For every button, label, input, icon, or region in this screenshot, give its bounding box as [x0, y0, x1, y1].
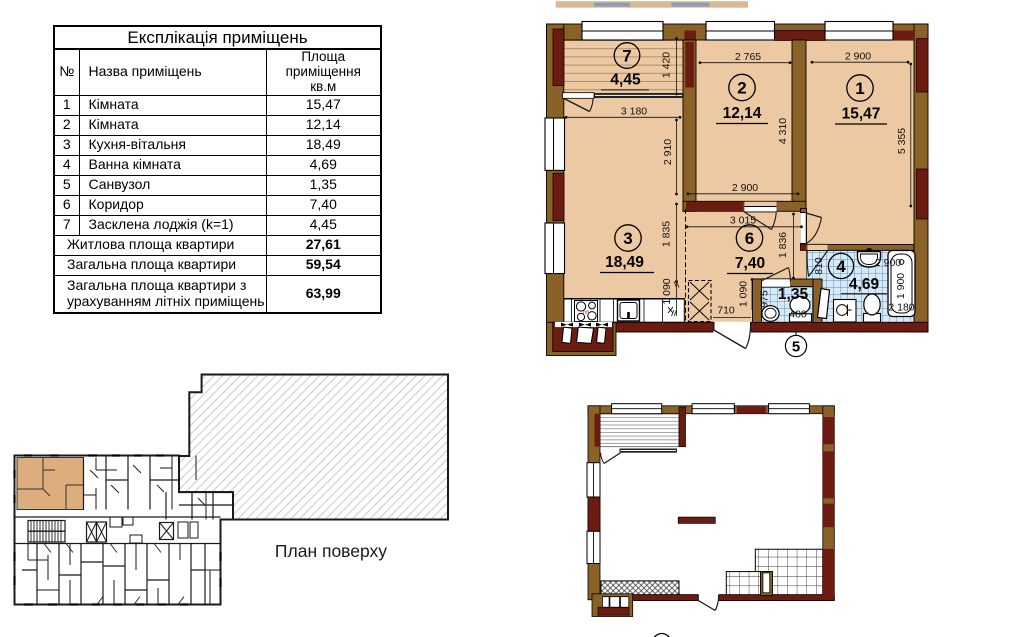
svg-text:18,49: 18,49 [605, 254, 644, 271]
svg-text:3: 3 [623, 229, 632, 248]
svg-text:4,69: 4,69 [849, 276, 880, 293]
svg-text:1: 1 [855, 79, 864, 98]
svg-text:6: 6 [745, 229, 754, 248]
svg-text:План поверху: План поверху [275, 541, 387, 561]
svg-text:2 765: 2 765 [735, 51, 761, 63]
svg-text:1 090: 1 090 [738, 281, 750, 307]
svg-text:1 835: 1 835 [661, 221, 673, 247]
svg-text:2 900: 2 900 [845, 51, 871, 63]
svg-text:2 900: 2 900 [732, 182, 758, 194]
svg-text:1 090: 1 090 [661, 278, 673, 304]
svg-text:1 420: 1 420 [661, 52, 673, 78]
svg-text:3 015: 3 015 [730, 215, 756, 227]
svg-text:810: 810 [813, 257, 825, 275]
svg-text:7,40: 7,40 [735, 255, 765, 272]
svg-text:975: 975 [759, 290, 771, 308]
svg-text:15,47: 15,47 [842, 106, 881, 123]
svg-text:2: 2 [737, 79, 746, 98]
svg-text:4,45: 4,45 [610, 72, 641, 89]
svg-text:1,35: 1,35 [778, 286, 809, 303]
svg-text:7: 7 [622, 47, 631, 66]
svg-text:5 355: 5 355 [896, 128, 908, 154]
svg-text:2 180: 2 180 [888, 302, 914, 314]
svg-text:2 910: 2 910 [662, 139, 674, 165]
svg-text:5: 5 [792, 339, 800, 356]
svg-text:1 900: 1 900 [895, 273, 907, 299]
svg-text:4 310: 4 310 [777, 118, 789, 144]
svg-text:пб: пб [583, 310, 589, 316]
svg-text:12,14: 12,14 [723, 105, 762, 122]
svg-text:4: 4 [836, 257, 846, 276]
svg-text:1 836: 1 836 [777, 232, 789, 258]
svg-text:400: 400 [789, 309, 807, 321]
svg-text:3 180: 3 180 [621, 106, 647, 118]
svg-text:710: 710 [717, 305, 735, 317]
svg-text:2 900: 2 900 [875, 257, 901, 269]
